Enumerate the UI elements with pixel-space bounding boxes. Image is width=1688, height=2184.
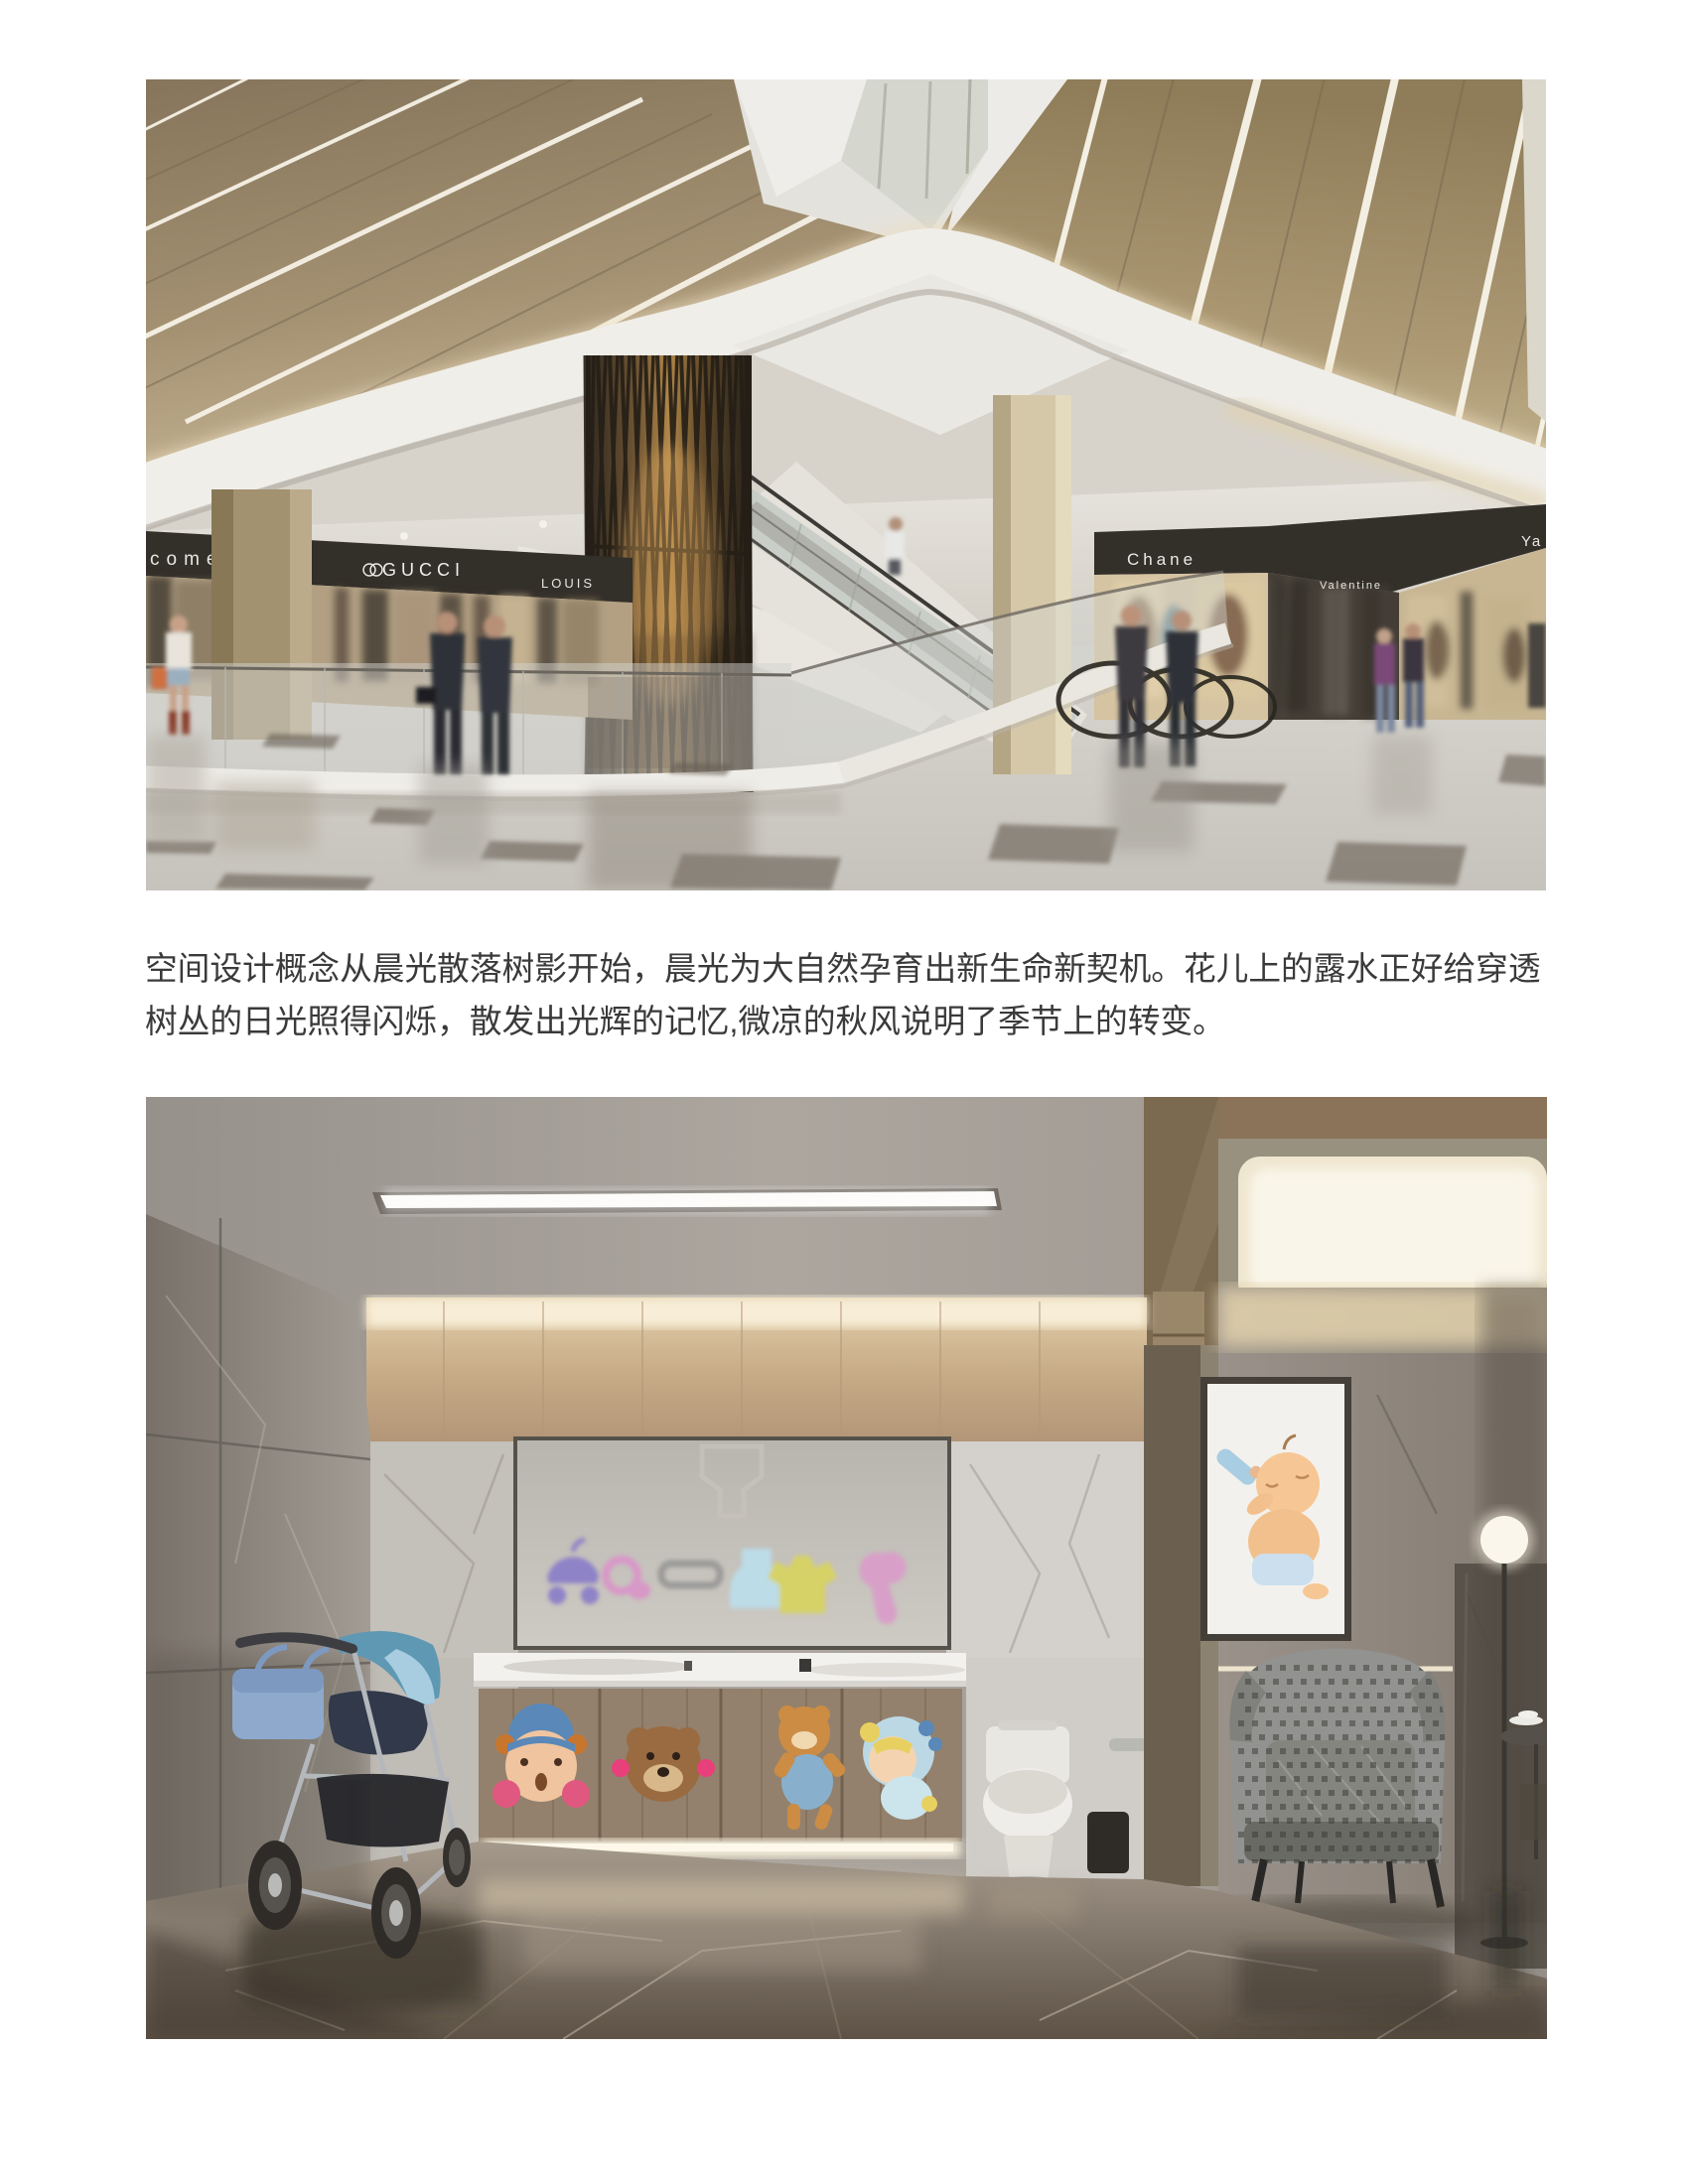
svg-text:Ya: Ya bbox=[1521, 533, 1542, 550]
svg-text:GUCCI: GUCCI bbox=[382, 560, 465, 580]
svg-text:LOUIS: LOUIS bbox=[541, 576, 595, 591]
svg-text:Chane: Chane bbox=[1127, 550, 1196, 569]
svg-text:Valentine: Valentine bbox=[1320, 580, 1382, 592]
